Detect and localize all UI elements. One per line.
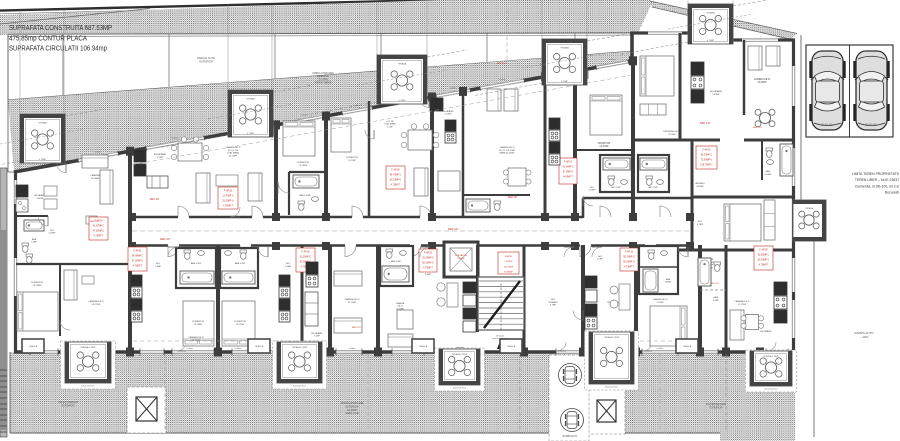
svg-text:4.69MP: 4.69MP <box>665 282 672 284</box>
svg-text:F-AP.10: F-AP.10 <box>625 251 634 254</box>
svg-text:TERASA 4.73MP: TERASA 4.73MP <box>763 355 779 358</box>
svg-text:4.7MP: 4.7MP <box>157 157 164 159</box>
svg-text:Ventilatie: Ventilatie <box>496 335 505 338</box>
svg-text:EXTERIOR: EXTERIOR <box>62 404 75 407</box>
svg-text:h=90cm: h=90cm <box>235 348 242 350</box>
svg-text:DORMITOR: DORMITOR <box>234 321 246 323</box>
svg-text:TEREN LIBER – lot IE 23637: TEREN LIBER – lot IE 23637 <box>855 178 899 182</box>
svg-text:TERASA 4.73MP: TERASA 4.73MP <box>292 346 308 349</box>
svg-text:DORMITOR: DORMITOR <box>31 282 43 284</box>
svg-text:RED 107: RED 107 <box>753 127 763 129</box>
svg-text:4.73MP: 4.73MP <box>39 159 47 161</box>
svg-text:44.0MP T: 44.0MP T <box>563 177 573 179</box>
svg-text:26.77MP: 26.77MP <box>92 304 101 306</box>
svg-text:5.57MP: 5.57MP <box>445 114 453 116</box>
svg-text:F-AP.10: F-AP.10 <box>702 149 711 152</box>
svg-text:SI LOC DE: SI LOC DE <box>228 150 239 152</box>
svg-text:4.73MP: 4.73MP <box>247 133 255 135</box>
svg-text:SPATIU: SPATIU <box>505 255 513 258</box>
svg-text:4.73MP T: 4.73MP T <box>759 265 769 267</box>
svg-text:53.35MP C: 53.35MP C <box>758 255 770 257</box>
svg-text:TEHNICA: TEHNICA <box>507 345 516 348</box>
svg-text:50.03MP U: 50.03MP U <box>623 262 635 264</box>
svg-text:50.03MP U: 50.03MP U <box>758 260 770 262</box>
svg-text:F-AP.07: F-AP.07 <box>564 161 573 164</box>
svg-text:4.73MP T: 4.73MP T <box>423 268 433 270</box>
svg-text:BAC 3.7MP: BAC 3.7MP <box>611 186 621 189</box>
svg-text:11.70MP C: 11.70MP C <box>222 196 234 198</box>
svg-text:ANTREU: ANTREU <box>696 182 705 185</box>
svg-text:BW150: BW150 <box>821 123 833 127</box>
svg-text:RED 107: RED 107 <box>448 227 459 231</box>
svg-text:5.4MP: 5.4MP <box>285 266 292 268</box>
svg-text:BAIE: BAIE <box>32 238 37 241</box>
svg-text:2.43MP: 2.43MP <box>49 233 57 235</box>
svg-text:216.73MP T: 216.73MP T <box>700 165 713 167</box>
svg-text:TEHNICA: TEHNICA <box>255 345 264 348</box>
svg-text:81.85MP: 81.85MP <box>504 272 513 274</box>
svg-text:12.1MP: 12.1MP <box>348 160 356 162</box>
svg-text:13.75MP: 13.75MP <box>348 302 357 304</box>
svg-text:4.70MP T: 4.70MP T <box>223 206 233 208</box>
svg-text:19.63MP: 19.63MP <box>757 82 767 84</box>
svg-text:BUCATARIE: BUCATARIE <box>154 153 167 156</box>
svg-text:3.7MP: 3.7MP <box>597 259 603 261</box>
svg-text:ELEVATOR: ELEVATOR <box>455 254 467 257</box>
svg-text:41.47MP C: 41.47MP C <box>93 226 105 228</box>
svg-text:66.75MP C: 66.75MP C <box>701 155 713 157</box>
svg-text:CAMERA DE ZI: CAMERA DE ZI <box>734 300 750 303</box>
svg-text:TEHNICA: TEHNICA <box>29 345 38 348</box>
svg-text:LIMITA TEREN PROPRIETATE: LIMITA TEREN PROPRIETATE <box>852 172 900 176</box>
svg-text:F-AP.06: F-AP.06 <box>391 169 400 172</box>
svg-text:2.35MP: 2.35MP <box>457 258 465 260</box>
svg-text:55.70MP C: 55.70MP C <box>623 257 635 259</box>
svg-text:TERASA 4.73MP: TERASA 4.73MP <box>604 336 620 339</box>
svg-text:CAMERA DE ZI: CAMERA DE ZI <box>88 300 104 303</box>
svg-text:RED 107: RED 107 <box>90 221 100 223</box>
svg-text:DORMITOR: DORMITOR <box>598 143 611 145</box>
svg-text:HOL: HOL <box>698 221 703 223</box>
svg-text:RED 1107: RED 1107 <box>497 63 508 65</box>
svg-text:53.35MP C: 53.35MP C <box>300 257 312 259</box>
svg-text:TERASA: TERASA <box>560 47 569 50</box>
svg-text:RED 107: RED 107 <box>508 197 518 199</box>
svg-text:F-AP.02: F-AP.02 <box>301 251 310 254</box>
svg-text:24.75MP C: 24.75MP C <box>390 175 402 177</box>
svg-text:105.94MP: 105.94MP <box>504 266 514 268</box>
svg-text:BUCATARIE: BUCATARIE <box>442 110 454 113</box>
svg-text:75.63MP U: 75.63MP U <box>701 160 713 162</box>
svg-text:BAIE: BAIE <box>714 296 719 299</box>
svg-text:BAIE: BAIE <box>666 278 671 281</box>
svg-text:SUPRAFATA CIRCULATII 106.94mp: SUPRAFATA CIRCULATII 106.94mp <box>9 46 107 53</box>
svg-text:21.77MP: 21.77MP <box>738 304 747 306</box>
svg-text:BAC 3.7MP: BAC 3.7MP <box>648 186 658 189</box>
svg-text:LUAT MASA: LUAT MASA <box>384 123 396 126</box>
svg-text:RED 1.07: RED 1.07 <box>700 122 711 125</box>
svg-text:2.4MP: 2.4MP <box>31 242 37 244</box>
svg-text:TERASA 4.73MP: TERASA 4.73MP <box>80 346 96 349</box>
svg-text:PARCAJ AUTO: PARCAJ AUTO <box>197 56 215 60</box>
svg-text:BAIE 3.70MP: BAIE 3.70MP <box>299 194 311 197</box>
svg-text:BAIE 3.7MP: BAIE 3.7MP <box>235 262 246 265</box>
svg-text:12.10MP: 12.10MP <box>299 165 308 167</box>
svg-text:F-AP.05: F-AP.05 <box>224 190 233 193</box>
svg-text:TERASA 4.73MP: TERASA 4.73MP <box>452 353 468 356</box>
svg-text:3.7MP: 3.7MP <box>697 224 704 226</box>
svg-text:DORMITOR: DORMITOR <box>346 157 358 159</box>
svg-text:5.07MP: 5.07MP <box>589 190 597 192</box>
svg-text:CAMERA DE ZI: CAMERA DE ZI <box>188 336 204 339</box>
svg-text:TERASA: TERASA <box>706 12 715 15</box>
svg-text:h=90cm: h=90cm <box>95 151 102 153</box>
svg-text:4.64MP: 4.64MP <box>764 174 772 176</box>
svg-text:TERASA: TERASA <box>246 98 255 101</box>
svg-text:SUPRAFATA CONSTRUITA 687.53MP: SUPRAFATA CONSTRUITA 687.53MP <box>9 25 112 32</box>
svg-text:DORMITOR: DORMITOR <box>192 321 204 323</box>
svg-text:MASA 24.45MP: MASA 24.45MP <box>500 152 515 155</box>
svg-text:CAMERA DE ZI: CAMERA DE ZI <box>653 298 668 301</box>
svg-text:12.10MP: 12.10MP <box>194 324 203 326</box>
svg-text:BUCATARIE: BUCATARIE <box>760 330 772 333</box>
svg-text:4.35MP: 4.35MP <box>696 186 704 188</box>
svg-text:balustrada 90cm: balustrada 90cm <box>605 386 619 389</box>
svg-text:3.7MP: 3.7MP <box>550 305 557 307</box>
svg-text:SPATIU VERDE: SPATIU VERDE <box>314 82 332 85</box>
svg-text:EXTERIOR: EXTERIOR <box>710 406 723 409</box>
svg-text:Cremenita, nr.98–100, lot 2 si: Cremenita, nr.98–100, lot 2 si <box>855 184 900 188</box>
svg-text:15.43MP: 15.43MP <box>91 178 100 180</box>
svg-text:TEHNICA: TEHNICA <box>683 345 692 348</box>
svg-text:h=90cm: h=90cm <box>609 59 616 61</box>
svg-text:BUCATARIE: BUCATARIE <box>311 332 323 335</box>
svg-text:Bucuresti: Bucuresti <box>885 191 899 195</box>
svg-text:12.07MP: 12.07MP <box>236 324 245 326</box>
svg-text:LUAT MASA: LUAT MASA <box>227 152 239 155</box>
svg-text:– 10%: – 10% <box>860 335 869 339</box>
svg-text:54.09MP C: 54.09MP C <box>132 256 144 258</box>
svg-text:475.85mp CONTUR PLACA: 475.85mp CONTUR PLACA <box>9 36 87 43</box>
svg-text:LOC DE: LOC DE <box>386 121 394 123</box>
svg-text:4.73MP: 4.73MP <box>561 81 569 83</box>
svg-text:13.47MP: 13.47MP <box>599 146 609 148</box>
svg-text:BAIE: BAIE <box>766 170 771 173</box>
svg-text:CAMERA DE ZI: CAMERA DE ZI <box>754 78 771 81</box>
svg-text:BUCATARIE: BUCATARIE <box>710 90 723 93</box>
svg-text:h=90cm: h=90cm <box>349 348 356 350</box>
svg-text:F-AP.01: F-AP.01 <box>133 250 142 253</box>
svg-text:43.14MP C: 43.14MP C <box>562 167 574 169</box>
svg-text:RED 107: RED 107 <box>352 327 362 329</box>
svg-text:TERASA: TERASA <box>38 122 47 125</box>
svg-text:BAIE 3.7MP: BAIE 3.7MP <box>391 260 402 263</box>
svg-text:balustrada 90cm: balustrada 90cm <box>764 388 778 391</box>
svg-text:50.03MP U: 50.03MP U <box>422 263 434 265</box>
svg-text:57.2MP U: 57.2MP U <box>563 172 574 174</box>
svg-text:F-AP.09: F-AP.09 <box>759 249 768 252</box>
svg-text:h=90cm: h=90cm <box>450 88 457 90</box>
svg-text:h=90cm: h=90cm <box>499 79 506 81</box>
svg-text:SI LOC DE LUAT: SI LOC DE LUAT <box>499 149 516 152</box>
svg-text:53.35MP C: 53.35MP C <box>422 258 434 260</box>
svg-text:TEHNICA: TEHNICA <box>419 345 428 348</box>
svg-text:26.74MP: 26.74MP <box>229 155 238 157</box>
svg-text:INTRARE: INTRARE <box>548 301 558 304</box>
svg-text:CAMERA DE ZI: CAMERA DE ZI <box>345 298 360 301</box>
svg-text:5.63MP: 5.63MP <box>712 94 720 96</box>
svg-text:53.23MP U: 53.23MP U <box>390 180 402 182</box>
svg-text:F-AP.02: F-AP.02 <box>424 252 433 255</box>
svg-text:4.73MP: 4.73MP <box>399 100 407 102</box>
svg-text:RAMPA AUTO: RAMPA AUTO <box>563 435 578 438</box>
svg-text:RED 107: RED 107 <box>150 199 160 201</box>
svg-text:4.6MP: 4.6MP <box>713 300 720 302</box>
svg-text:4.73MP: 4.73MP <box>707 40 715 42</box>
svg-text:balustrada 90cm: balustrada 90cm <box>453 387 467 390</box>
svg-text:DORMITOR: DORMITOR <box>297 162 309 164</box>
svg-text:5.7MP: 5.7MP <box>387 126 393 128</box>
svg-text:balustrada 90cm: balustrada 90cm <box>293 385 307 388</box>
svg-text:2.9MP: 2.9MP <box>155 266 162 268</box>
svg-text:5.5MP: 5.5MP <box>314 336 320 338</box>
svg-text:h=90cm: h=90cm <box>301 114 308 116</box>
svg-text:CAMERA: CAMERA <box>90 174 100 177</box>
svg-text:h=90cm: h=90cm <box>187 348 194 350</box>
svg-text:10.5MP: 10.5MP <box>668 134 676 136</box>
svg-text:CAMERA DE ZI: CAMERA DE ZI <box>500 146 515 149</box>
svg-text:47.02MP U: 47.02MP U <box>132 261 144 263</box>
svg-text:4.73MP T: 4.73MP T <box>94 236 104 238</box>
svg-text:CAMERA: CAMERA <box>396 302 405 305</box>
svg-text:13.76MP: 13.76MP <box>33 285 42 287</box>
svg-text:COMUN: COMUN <box>505 261 513 263</box>
svg-text:h=90cm: h=90cm <box>172 138 179 140</box>
svg-text:47.02MP U: 47.02MP U <box>93 231 105 233</box>
svg-text:h=90cm: h=90cm <box>657 348 664 350</box>
svg-text:balustrada 90cm: balustrada 90cm <box>81 385 95 388</box>
svg-text:TERASA: TERASA <box>805 207 814 210</box>
svg-text:BAIE 3.7MP: BAIE 3.7MP <box>191 262 202 265</box>
svg-text:RED 107: RED 107 <box>160 237 171 241</box>
svg-text:3.4MP: 3.4MP <box>425 274 432 276</box>
svg-text:BW150: BW150 <box>865 123 877 127</box>
svg-text:53.25MP U: 53.25MP U <box>222 201 234 203</box>
svg-text:4.73MP T: 4.73MP T <box>133 266 143 268</box>
svg-text:4.73MP T: 4.73MP T <box>624 267 634 269</box>
svg-text:13.9MP: 13.9MP <box>656 302 664 304</box>
svg-text:CAMERA DE ZI: CAMERA DE ZI <box>226 146 241 149</box>
svg-text:spatiu verde: spatiu verde <box>345 412 359 415</box>
svg-text:DRESSING-HOVE: DRESSING-HOVE <box>663 131 681 133</box>
svg-text:4.73MP T: 4.73MP T <box>391 185 401 187</box>
svg-text:DE ZI: DE ZI <box>397 306 403 308</box>
svg-text:TERASA: TERASA <box>398 63 407 66</box>
svg-text:3.91MP: 3.91MP <box>36 198 44 200</box>
svg-text:EXTERIOR: EXTERIOR <box>199 59 212 63</box>
